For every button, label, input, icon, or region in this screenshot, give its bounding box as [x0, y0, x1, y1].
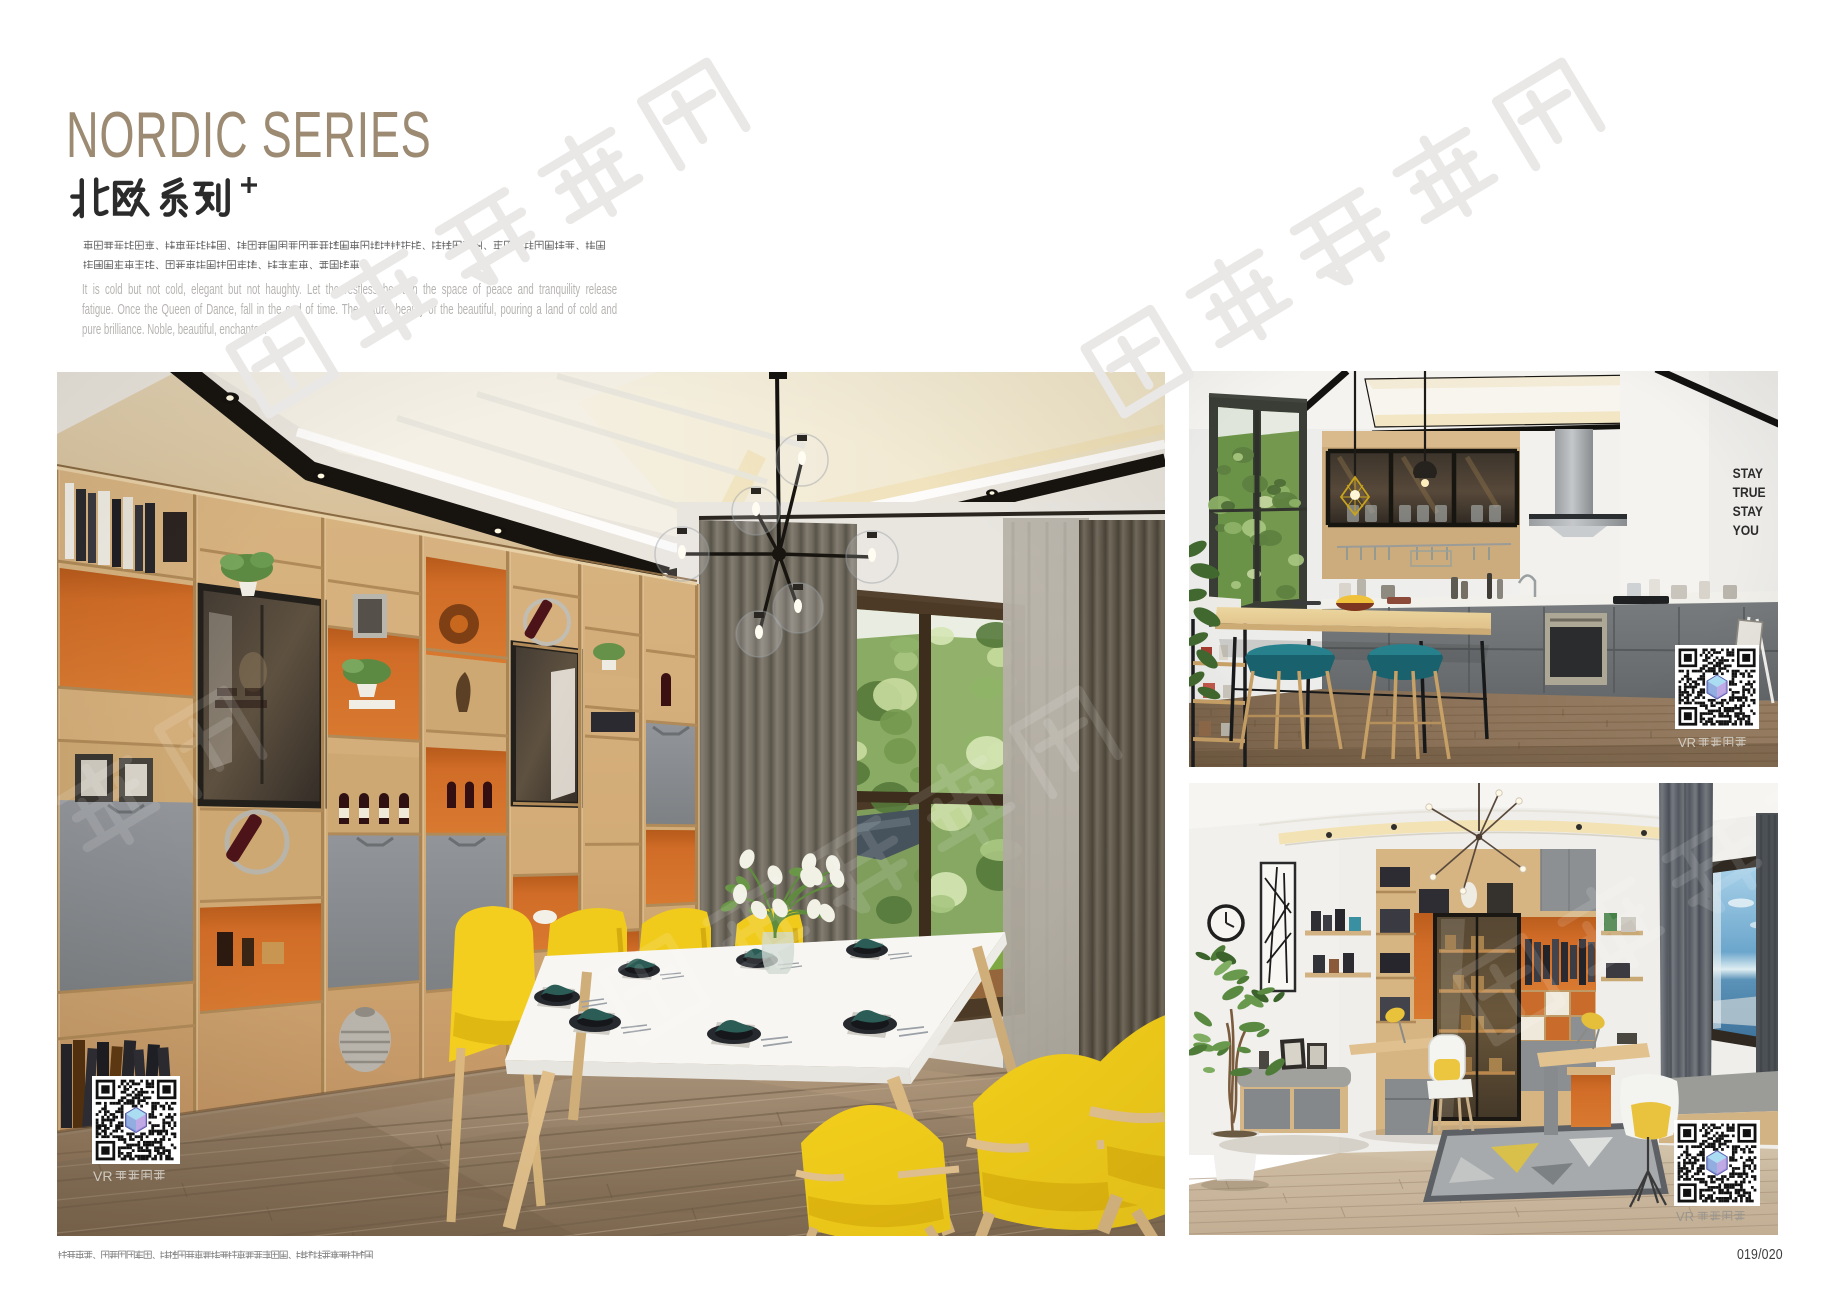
svg-text:VR: VR	[93, 1168, 112, 1184]
svg-text:VR: VR	[1678, 735, 1696, 750]
svg-text:VR: VR	[1676, 1209, 1694, 1224]
